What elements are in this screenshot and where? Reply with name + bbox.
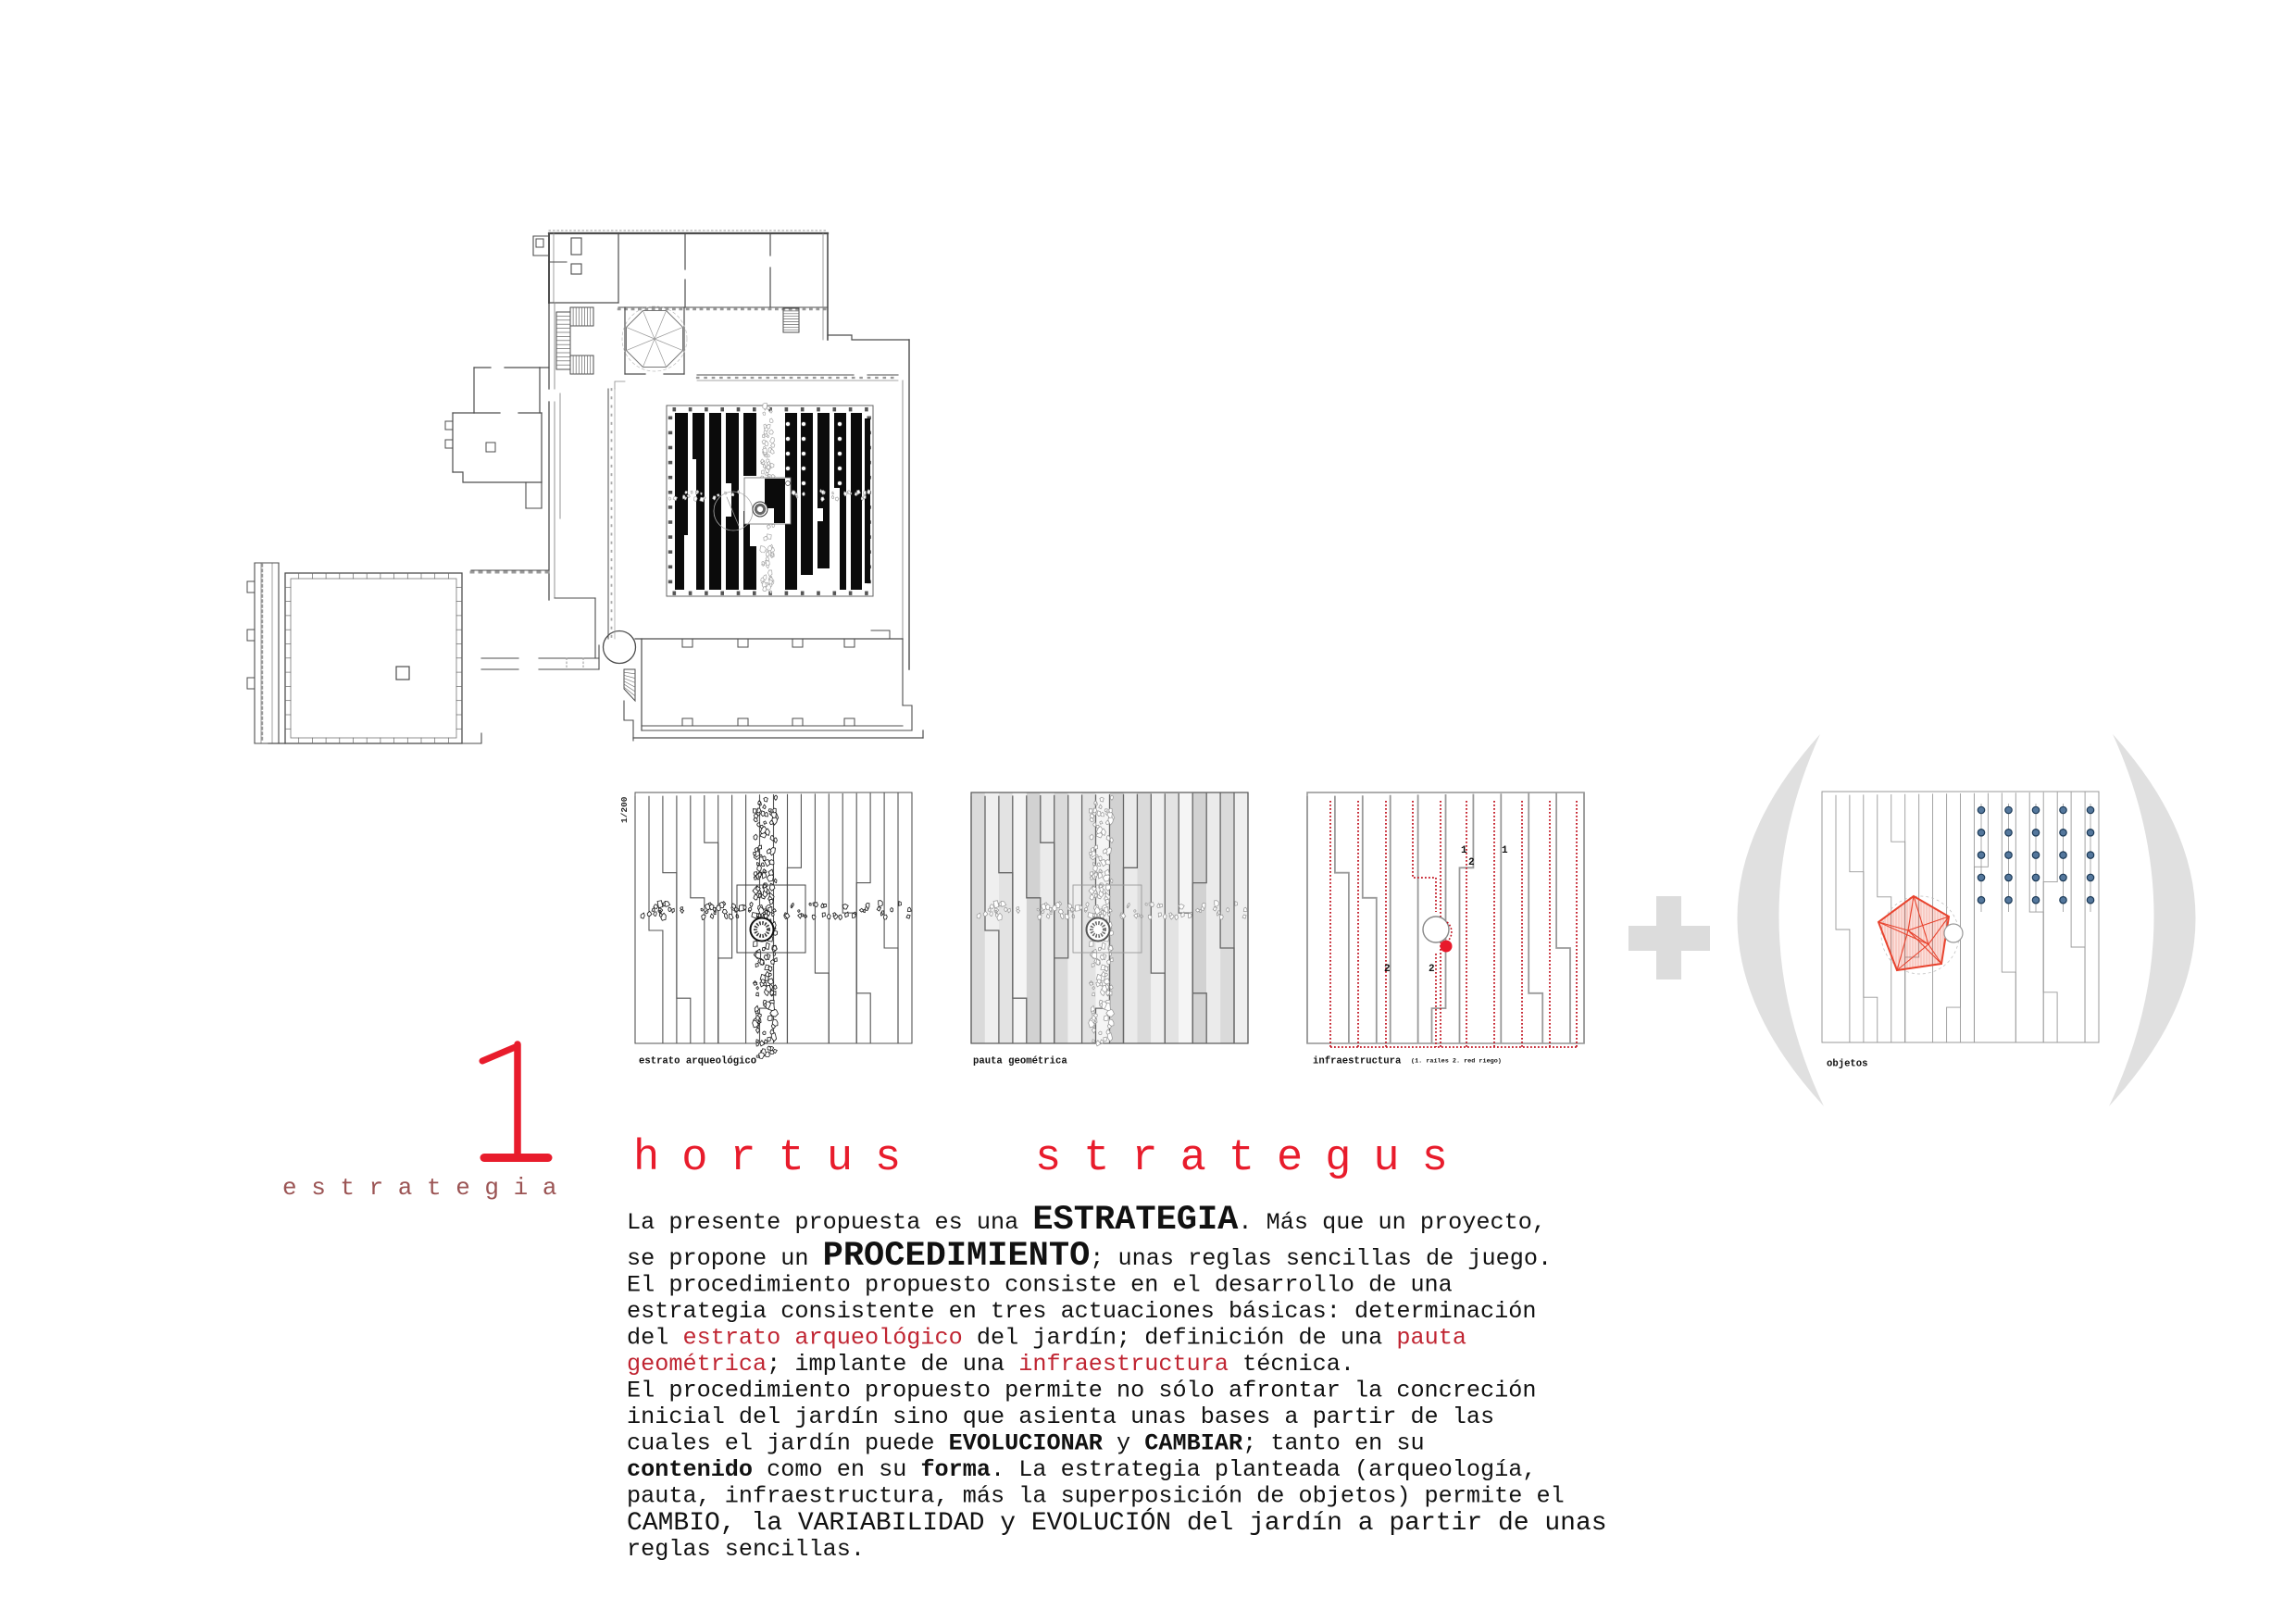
svg-text:(1. raíles 2. red riego): (1. raíles 2. red riego): [1411, 1058, 1502, 1066]
svg-text:1: 1: [1461, 845, 1467, 856]
svg-text:strategus: strategus: [1035, 1134, 1470, 1183]
svg-text:2: 2: [1384, 964, 1391, 975]
svg-text:del estrato arqueológico del j: del estrato arqueológico del jardín; def…: [627, 1325, 1466, 1352]
svg-text:reglas sencillas.: reglas sencillas.: [627, 1536, 865, 1563]
svg-text:pauta, infraestructura, más la: pauta, infraestructura, más la superposi…: [627, 1483, 1565, 1510]
svg-text:1: 1: [1502, 845, 1508, 856]
svg-text:objetos: objetos: [1827, 1059, 1868, 1070]
svg-text:El procedimiento propuesto per: El procedimiento propuesto permite no só…: [627, 1378, 1536, 1404]
svg-text:El procedimiento propuesto con: El procedimiento propuesto consiste en e…: [627, 1272, 1453, 1299]
svg-text:pauta geométrica: pauta geométrica: [973, 1056, 1067, 1067]
svg-text:inicial del jardín sino que as: inicial del jardín sino que asienta unas…: [627, 1404, 1494, 1430]
svg-text:CAMBIO, la VARIABILIDAD y EVOL: CAMBIO, la VARIABILIDAD y EVOLUCIÓN del …: [627, 1507, 1607, 1538]
svg-text:geométrica; implante de una in: geométrica; implante de una infraestruct…: [627, 1351, 1354, 1378]
svg-text:estrato arqueológico: estrato arqueológico: [639, 1056, 756, 1067]
svg-text:estrategia consistente en tres: estrategia consistente en tres actuacion…: [627, 1298, 1536, 1325]
svg-text:hortus: hortus: [633, 1134, 923, 1183]
svg-text:contenido como en su forma. La: contenido como en su forma. La estrategi…: [627, 1456, 1537, 1483]
svg-text:1/200: 1/200: [619, 796, 630, 823]
svg-text:2: 2: [1468, 857, 1475, 868]
svg-text:cuales el jardín puede EVOLUCI: cuales el jardín puede EVOLUCIONAR y CAM…: [627, 1430, 1425, 1457]
svg-text:2: 2: [1429, 964, 1435, 975]
svg-text:infraestructura: infraestructura: [1313, 1056, 1402, 1067]
svg-text:estrategia: estrategia: [282, 1174, 571, 1202]
